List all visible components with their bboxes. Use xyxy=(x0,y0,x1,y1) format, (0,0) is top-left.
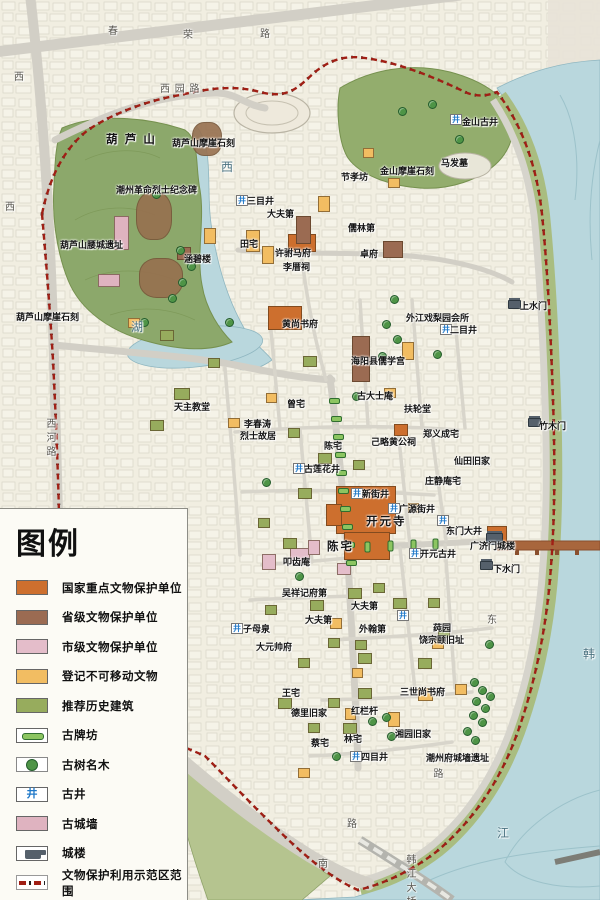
legend-label: 古井 xyxy=(62,786,86,802)
legend-item: 城楼 xyxy=(16,839,187,869)
legend-label: 城楼 xyxy=(62,845,86,861)
legend-item: 古城墙 xyxy=(16,809,187,839)
legend-label: 文物保护利用示范区范围 xyxy=(62,867,187,899)
legend-item: 省级文物保护单位 xyxy=(16,603,187,633)
legend-label: 市级文物保护单位 xyxy=(62,639,158,655)
legend-swatch xyxy=(16,816,48,831)
legend-label: 推荐历史建筑 xyxy=(62,698,134,714)
legend-item: 推荐历史建筑 xyxy=(16,691,187,721)
legend-swatch xyxy=(16,846,48,861)
legend-swatch xyxy=(16,639,48,654)
legend-panel: 图例 国家重点文物保护单位 省级文物保护单位 市级文物保护单位 登记不可移动文物… xyxy=(0,508,188,900)
legend-swatch xyxy=(16,757,48,772)
legend-swatch xyxy=(16,875,48,890)
legend-label: 登记不可移动文物 xyxy=(62,668,158,684)
legend-title: 图例 xyxy=(16,519,187,563)
heritage-map: 井井井井井井井井井井井 春荣路西西西 园 路西河路西湖韩江东南路路韩江大桥葫 芦… xyxy=(0,0,600,900)
legend-item: 文物保护利用示范区范围 xyxy=(16,868,187,898)
legend-swatch xyxy=(16,610,48,625)
legend-item: 国家重点文物保护单位 xyxy=(16,573,187,603)
legend-label: 国家重点文物保护单位 xyxy=(62,580,182,596)
legend-item: 古树名木 xyxy=(16,750,187,780)
legend-item: 市级文物保护单位 xyxy=(16,632,187,662)
legend-swatch xyxy=(16,787,48,802)
legend-label: 古树名木 xyxy=(62,757,110,773)
legend-swatch xyxy=(16,728,48,743)
legend-label: 省级文物保护单位 xyxy=(62,609,158,625)
legend-label: 古牌坊 xyxy=(62,727,98,743)
legend-swatch xyxy=(16,698,48,713)
legend-item: 古牌坊 xyxy=(16,721,187,751)
legend-swatch xyxy=(16,580,48,595)
legend-items: 国家重点文物保护单位 省级文物保护单位 市级文物保护单位 登记不可移动文物 推荐… xyxy=(16,573,187,898)
legend-item: 登记不可移动文物 xyxy=(16,662,187,692)
jin-hill-court xyxy=(439,153,491,179)
legend-item: 古井 xyxy=(16,780,187,810)
legend-label: 古城墙 xyxy=(62,816,98,832)
legend-swatch xyxy=(16,669,48,684)
